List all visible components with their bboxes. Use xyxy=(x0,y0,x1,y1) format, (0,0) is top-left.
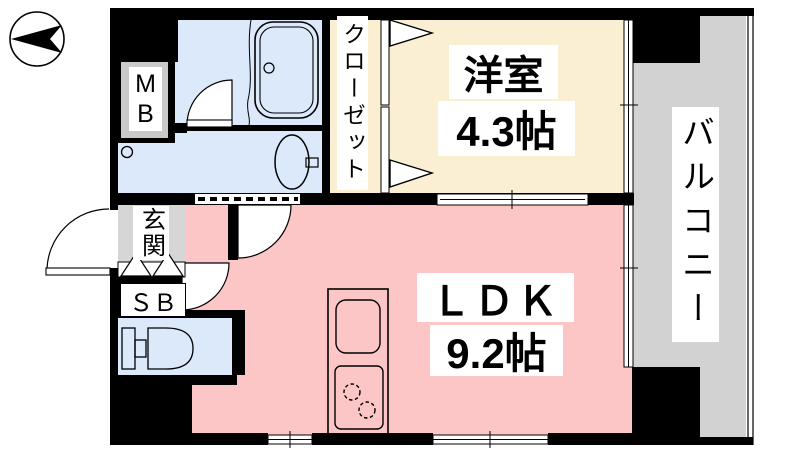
entrance-door-swing-fill xyxy=(47,209,109,271)
floorplan: クローゼット 洋室 4.3帖 ＬＤＫ 9.2帖 バルコニー 玄関 ＳＢ M B xyxy=(0,0,800,450)
wall-bottom-3 xyxy=(548,433,635,445)
western-room-size: 4.3帖 xyxy=(438,101,575,156)
wall-bottomright-block xyxy=(632,367,700,437)
wall-balcony-bottom xyxy=(632,437,753,445)
wall-right-segment xyxy=(624,193,634,205)
closet-label: クローゼット xyxy=(337,16,368,190)
wall-bathdoor-stub xyxy=(175,123,187,133)
balcony-label: バルコニー xyxy=(672,107,719,342)
closet-door-panel-bottom xyxy=(381,107,389,193)
western-room-label: 洋室 xyxy=(449,45,558,99)
wall-closet-left xyxy=(322,12,330,205)
wall-bottomleft-block xyxy=(110,375,192,443)
wall-topleft-block xyxy=(110,8,178,62)
genkan-label: 玄関 xyxy=(133,206,169,260)
wall-topright-block xyxy=(632,13,700,63)
north-arrow-icon xyxy=(10,12,64,66)
closet-door-panel-top xyxy=(381,20,389,105)
bathroom-door-leaf xyxy=(187,120,232,127)
wall-toilet-right xyxy=(232,310,245,375)
entrance-door-leaf xyxy=(46,268,110,275)
meter-box-label: M B xyxy=(129,67,162,131)
balcony-railing xyxy=(748,8,753,445)
ldk-label: ＬＤＫ xyxy=(417,273,574,322)
wall-bottomleft-strip xyxy=(192,375,237,385)
ldk-size: 9.2帖 xyxy=(430,325,563,376)
wall-top xyxy=(110,8,635,20)
wall-door-stub xyxy=(228,205,238,260)
shoe-box-label: ＳＢ xyxy=(120,283,186,317)
